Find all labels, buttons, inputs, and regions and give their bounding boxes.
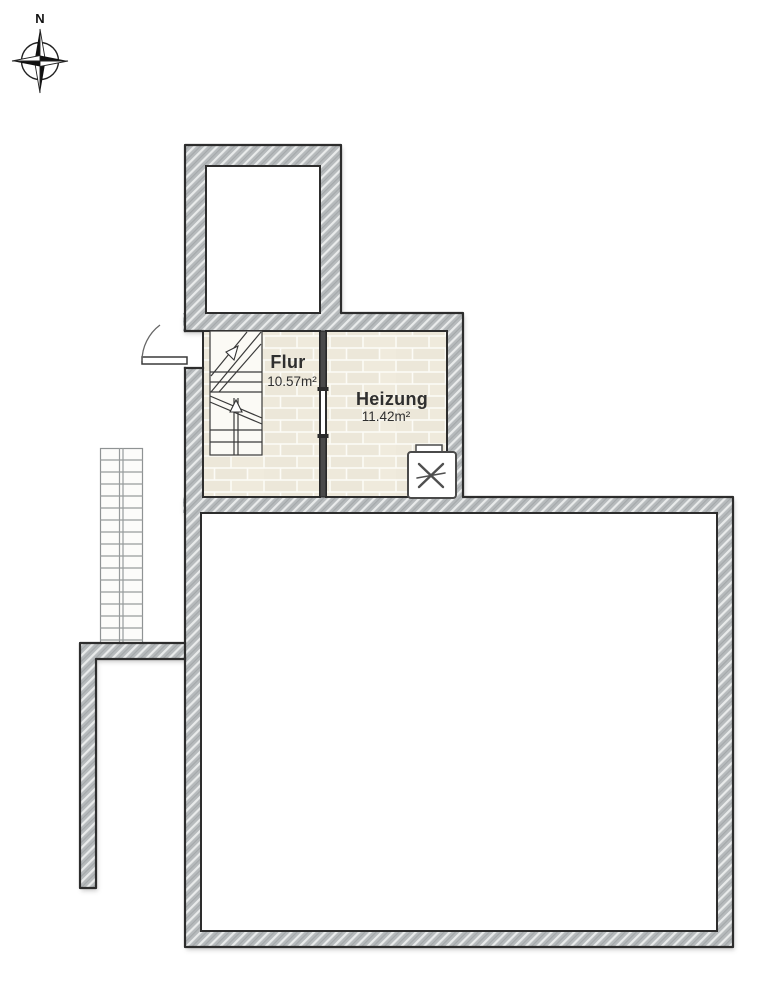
floorplan-canvas: Flur 10.57m² Heizung 11.42m² N [0,0,783,1000]
wall-band-middle [183,497,733,513]
wall-annex-right [320,145,341,331]
compass-north-label: N [35,11,44,26]
room-label-heizung: Heizung [356,389,428,409]
exterior-stair-outline [101,449,143,644]
floorplan-page: Flur 10.57m² Heizung 11.42m² N [0,0,783,1000]
wall-corridor-thin [80,643,96,888]
door-swing-arc [142,325,160,361]
compass-rose-icon: N [12,11,68,93]
wall-bigroom-right [717,497,733,947]
room-bigroom-floor [201,513,717,931]
door-leaf [142,357,187,364]
room-label-flur: Flur [270,352,305,372]
wall-annex-left [185,145,206,331]
wall-annex-top [185,145,341,166]
interior-staircase [210,331,262,455]
wall-band-rooms [183,313,463,331]
exterior-staircase [100,448,143,644]
wall-bigroom-left [185,497,201,947]
boiler-icon [408,445,456,498]
room-annex-floor [206,166,320,313]
room-area-heizung: 11.42m² [362,409,411,424]
room-area-flur: 10.57m² [267,374,317,389]
wall-bigroom-bottom [185,931,733,947]
entry-door [142,325,187,364]
wall-flur-left [185,368,203,497]
